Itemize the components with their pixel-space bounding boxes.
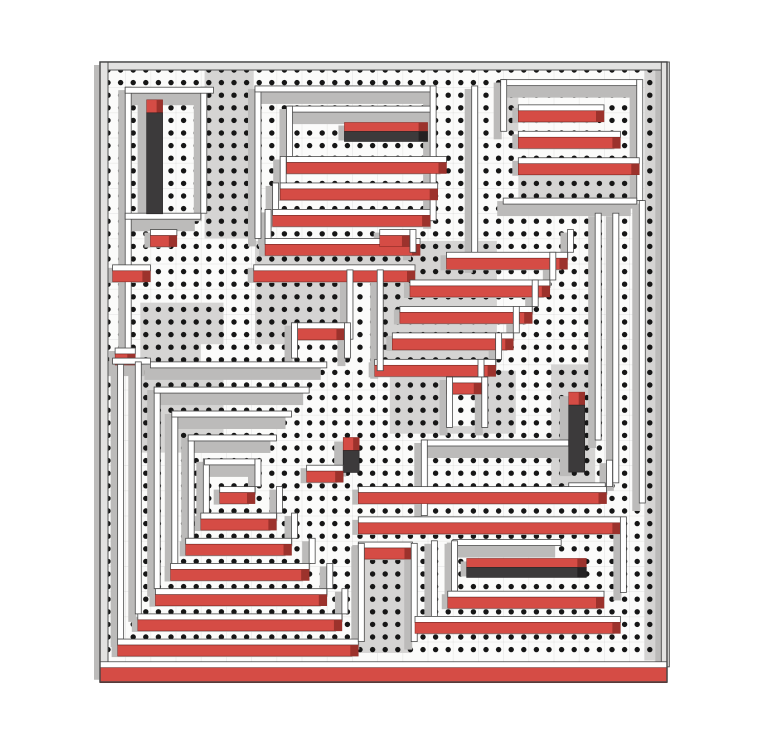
maze-figure — [0, 0, 768, 737]
page — [0, 0, 768, 737]
maze-graphic — [0, 0, 768, 737]
